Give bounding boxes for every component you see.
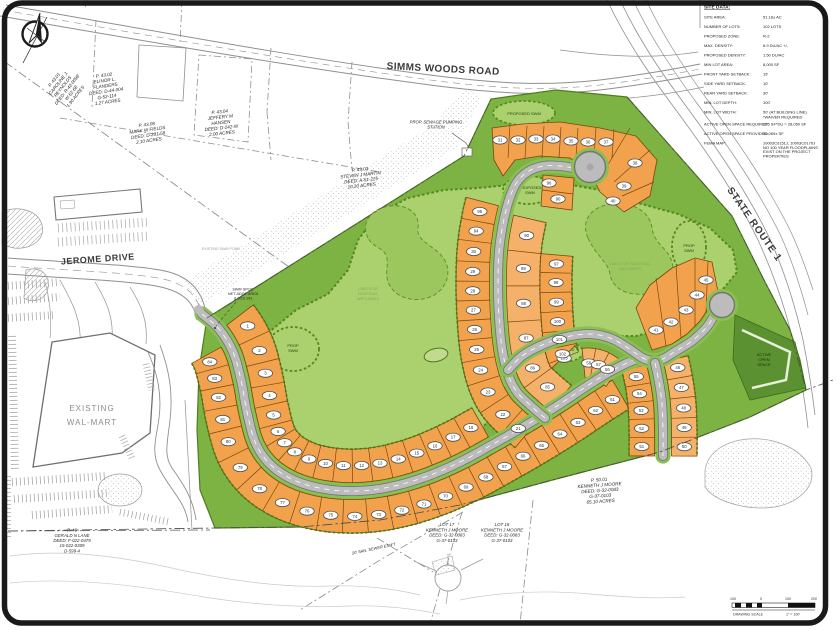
svg-text:102 LOTS: 102 LOTS [763,24,782,29]
svg-text:PROPOSED DENSITY:: PROPOSED DENSITY: [704,53,746,58]
svg-text:48: 48 [681,406,686,411]
svg-text:30,069± SF: 30,069± SF [763,131,784,136]
svg-text:69: 69 [464,485,469,490]
svg-text:PROPERTIES: PROPERTIES [763,153,789,158]
svg-text:85: 85 [545,384,550,389]
svg-text:95: 95 [477,209,482,214]
svg-text:65: 65 [539,443,544,448]
svg-text:68: 68 [484,475,489,480]
svg-text:70: 70 [443,494,448,499]
svg-text:12: 12 [359,463,364,468]
svg-text:44: 44 [695,293,700,298]
svg-text:47: 47 [679,385,684,390]
svg-text:16: 16 [433,443,438,448]
svg-text:90: 90 [556,197,561,202]
svg-text:100: 100 [785,597,791,601]
svg-text:EXISTING: EXISTING [69,404,114,413]
svg-text:MIN LOT AREA:: MIN LOT AREA: [704,62,733,67]
svg-text:SITE AREA:: SITE AREA: [704,15,726,20]
svg-text:42: 42 [669,320,674,325]
svg-text:79: 79 [238,465,243,470]
svg-text:EXISTING SWM POND: EXISTING SWM POND [202,247,240,251]
svg-text:30: 30 [471,249,476,254]
svg-text:11: 11 [341,463,346,468]
svg-text:76: 76 [305,509,310,514]
svg-text:G-37-0103: G-37-0103 [437,538,459,543]
svg-text:100': 100' [763,100,771,105]
svg-text:*WAIVER REQUIRED: *WAIVER REQUIRED [763,115,803,120]
svg-text:22: 22 [501,412,506,417]
svg-text:67: 67 [502,464,507,469]
svg-text:84: 84 [207,359,212,364]
svg-text:G-37-0103: G-37-0103 [492,538,514,543]
svg-text:74: 74 [352,514,357,519]
svg-text:MIN. LOT WIDTH:: MIN. LOT WIDTH: [704,110,737,115]
svg-text:49: 49 [682,425,687,430]
svg-text:SWM: SWM [288,348,298,353]
svg-text:63: 63 [576,420,581,425]
svg-text:NUMBER OF LOTS:: NUMBER OF LOTS: [704,24,741,29]
svg-text:23: 23 [486,390,491,395]
svg-text:72: 72 [400,508,405,513]
svg-text:33: 33 [534,137,539,142]
svg-text:39: 39 [622,184,627,189]
svg-text:34: 34 [551,137,556,142]
svg-text:SWM: SWM [525,190,535,195]
svg-text:80: 80 [226,439,231,444]
svg-text:275 SF*DU = 28,050 SF: 275 SF*DU = 28,050 SF [763,122,807,127]
svg-text:14: 14 [396,457,401,462]
svg-text:64: 64 [558,432,563,437]
svg-text:(LOSS SF): (LOSS SF) [234,297,253,301]
svg-text:8.9 DU/AC +/-: 8.9 DU/AC +/- [763,43,789,48]
svg-text:82: 82 [216,395,221,400]
svg-text:100: 100 [730,597,736,601]
svg-text:41: 41 [654,328,659,333]
svg-text:10': 10' [763,81,768,86]
svg-text:61: 61 [610,397,615,402]
svg-text:52: 52 [639,426,644,431]
svg-text:37: 37 [604,140,609,145]
svg-text:97: 97 [554,261,559,266]
svg-text:WETLANDS: WETLANDS [619,266,642,271]
svg-text:78: 78 [257,486,262,491]
svg-text:35: 35 [569,139,574,144]
svg-text:MAX. DENSITY:: MAX. DENSITY: [704,43,733,48]
svg-text:D-599-4: D-599-4 [64,548,80,553]
svg-text:STATION: STATION [427,125,446,130]
svg-text:30': 30' [763,91,768,96]
svg-text:51.18± AC: 51.18± AC [763,15,782,20]
svg-text:DRAWING SCALE: DRAWING SCALE [733,613,764,617]
svg-text:53: 53 [639,408,644,413]
svg-text:56: 56 [605,367,610,372]
svg-text:32: 32 [516,138,521,143]
svg-text:25: 25 [474,347,479,352]
svg-text:SIDE YARD SETBACK:: SIDE YARD SETBACK: [704,81,746,86]
svg-text:71: 71 [422,502,427,507]
svg-text:45: 45 [704,278,709,283]
svg-text:24: 24 [478,368,483,373]
svg-text:87: 87 [524,336,529,341]
svg-text:15': 15' [763,72,768,77]
svg-text:88: 88 [521,301,526,306]
svg-text:94: 94 [474,229,479,234]
svg-text:81: 81 [220,417,225,422]
svg-text:101: 101 [556,337,564,342]
svg-text:55: 55 [634,374,639,379]
svg-text:83: 83 [212,376,217,381]
svg-text:PROPOSED SWM: PROPOSED SWM [507,111,541,116]
svg-text:50: 50 [682,444,687,449]
svg-text:27: 27 [471,308,476,313]
svg-text:26: 26 [472,327,477,332]
svg-text:REAR YARD SETBACK:: REAR YARD SETBACK: [704,91,748,96]
svg-text:43: 43 [684,308,689,313]
svg-text:17: 17 [451,435,456,440]
svg-text:100: 100 [554,319,562,324]
svg-text:200: 200 [811,597,817,601]
svg-text:1" = 100': 1" = 100' [786,613,800,617]
svg-text:0: 0 [760,597,762,601]
svg-text:38: 38 [633,161,638,166]
svg-text:21: 21 [516,426,521,431]
svg-text:40: 40 [611,199,616,204]
svg-text:SWM: SWM [684,248,694,253]
svg-text:8,000 SF: 8,000 SF [763,62,780,67]
svg-text:R-2: R-2 [763,34,770,39]
svg-text:102: 102 [559,351,567,356]
svg-text:96: 96 [547,181,552,186]
svg-text:15: 15 [414,451,419,456]
svg-text:54: 54 [637,391,642,396]
svg-text:86: 86 [530,366,535,371]
svg-text:WETLANDS: WETLANDS [357,296,380,301]
svg-text:29: 29 [470,269,475,274]
svg-text:13: 13 [378,461,383,466]
svg-text:66: 66 [521,454,526,459]
svg-text:MIN. LOT DEPTH:: MIN. LOT DEPTH: [704,100,737,105]
svg-text:18: 18 [469,425,474,430]
svg-text:51: 51 [639,444,644,449]
svg-text:90: 90 [524,233,529,238]
svg-text:ACTIVE OPEN SPACE REQUIRED:: ACTIVE OPEN SPACE REQUIRED: [704,122,769,127]
svg-text:62: 62 [593,408,598,413]
svg-text:WAL-MART: WAL-MART [67,418,117,427]
svg-text:31: 31 [498,138,503,143]
svg-text:77: 77 [280,500,285,505]
svg-text:FEMA MAP:: FEMA MAP: [704,141,726,146]
svg-text:10: 10 [323,461,328,466]
svg-text:73: 73 [376,512,381,517]
svg-text:57: 57 [596,362,601,367]
svg-text:FRONT YARD SETBACK:: FRONT YARD SETBACK: [704,72,750,77]
svg-text:1.50 DU/AC: 1.50 DU/AC [763,53,784,58]
svg-text:75: 75 [328,513,333,518]
svg-text:89: 89 [521,266,526,271]
svg-text:ACTIVE OPEN SPACE PROVIDED:: ACTIVE OPEN SPACE PROVIDED: [704,131,768,136]
svg-text:36: 36 [586,140,591,145]
svg-text:99: 99 [554,300,559,305]
svg-text:28: 28 [470,288,475,293]
svg-text:46: 46 [675,365,680,370]
svg-text:SPACE: SPACE [757,362,771,367]
svg-text:98: 98 [554,280,559,285]
svg-text:PROPOSED ZONE:: PROPOSED ZONE: [704,34,740,39]
